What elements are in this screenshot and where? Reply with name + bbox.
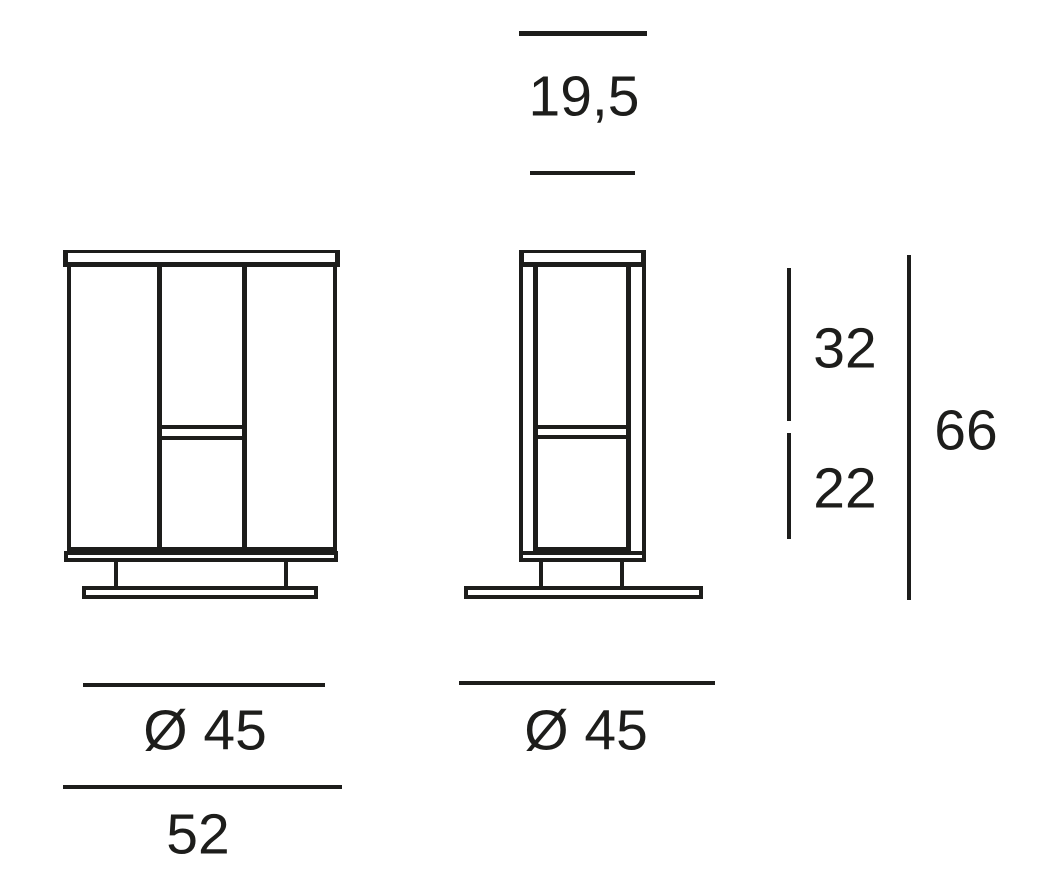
technical-drawing: 19,5 32 22 66 Ø 45 Ø 45 52 (0, 0, 1062, 878)
depth-dim-label: 19,5 (529, 69, 640, 126)
base-diameter-side-dim-label: Ø 45 (524, 703, 648, 760)
depth-dim-line-top (519, 31, 647, 36)
dimension-annotations: 19,5 32 22 66 Ø 45 Ø 45 52 (0, 0, 1062, 878)
upper-section-dim-line (787, 268, 791, 421)
lower-section-dim-label: 22 (813, 461, 876, 518)
total-height-dim-label: 66 (934, 403, 997, 460)
upper-section-dim-label: 32 (813, 321, 876, 378)
total-width-dim-label: 52 (166, 807, 229, 864)
lower-section-dim-line (787, 433, 791, 539)
base-diameter-side-dim-line (459, 681, 715, 685)
total-height-dim-line (907, 255, 911, 600)
base-diameter-front-dim-label: Ø 45 (143, 703, 267, 760)
base-diameter-front-dim-line (83, 683, 325, 687)
total-width-dim-line (63, 785, 342, 789)
depth-dim-line-bottom (530, 171, 635, 175)
